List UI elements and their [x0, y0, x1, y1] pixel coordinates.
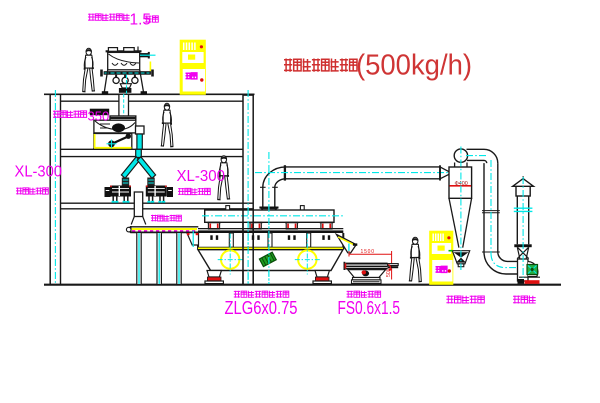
svg-text:FS0.6x1.5: FS0.6x1.5 — [338, 298, 401, 318]
svg-text:(500kg/h): (500kg/h) — [356, 50, 472, 82]
svg-text:XL-300: XL-300 — [15, 164, 63, 181]
svg-text:1500: 1500 — [361, 249, 375, 255]
svg-text:1.5: 1.5 — [130, 12, 152, 29]
svg-text:XL-300: XL-300 — [177, 168, 226, 185]
svg-text:350: 350 — [88, 109, 110, 124]
svg-text:ZLG6x0.75: ZLG6x0.75 — [225, 298, 298, 318]
